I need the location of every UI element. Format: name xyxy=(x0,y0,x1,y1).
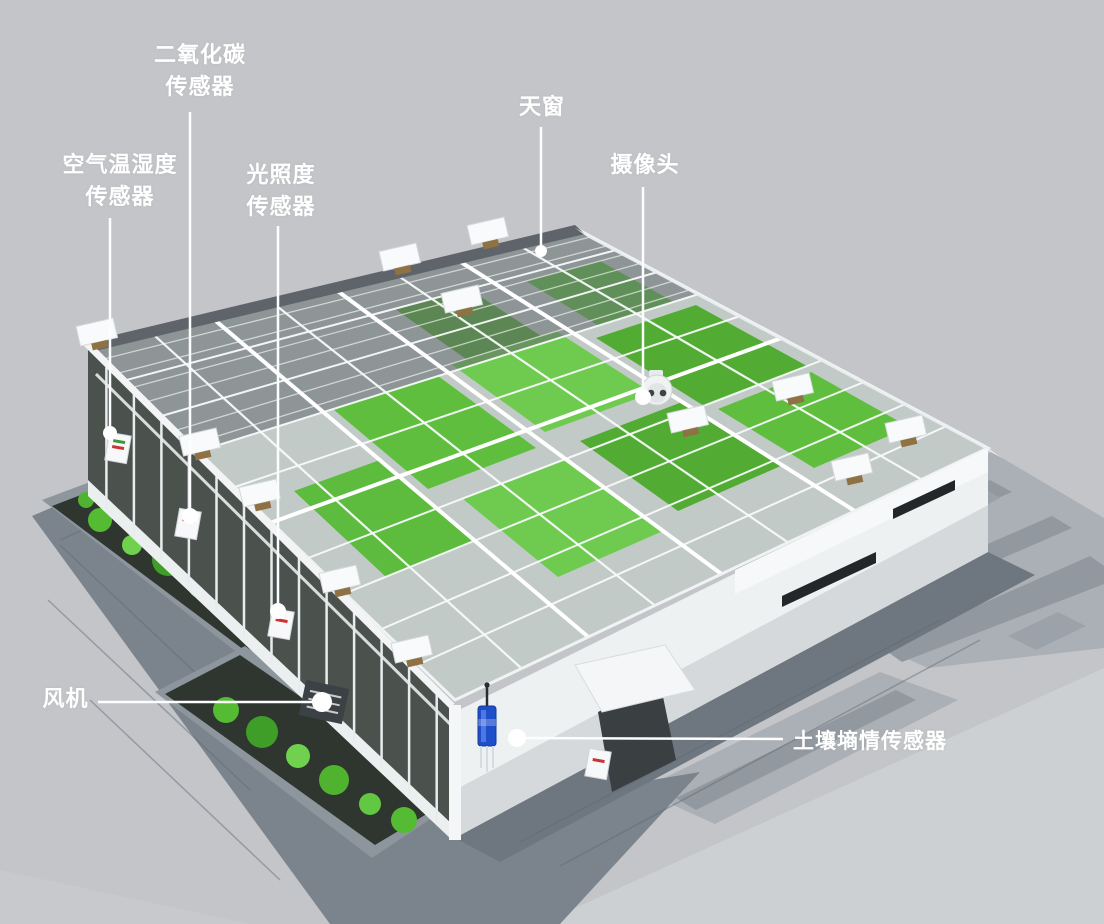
leader-dot-co2 xyxy=(182,508,198,524)
label-skylight: 天窗 xyxy=(492,92,592,124)
label-camera: 摄像头 xyxy=(595,150,695,182)
label-fan: 风机 xyxy=(28,684,103,716)
label-air-temp-humidity-sensor: 空气温湿度 传感器 xyxy=(45,150,195,214)
scene-canvas xyxy=(0,0,1104,924)
leader-dot-light xyxy=(270,603,286,619)
leader-dot-camera xyxy=(635,389,651,405)
label-co2-sensor: 二氧化碳 传感器 xyxy=(130,40,270,104)
leader-dot-fan xyxy=(312,692,332,712)
greenhouse-diagram: 二氧化碳 传感器 空气温湿度 传感器 光照度 传感器 天窗 摄像头 风机 土壤墒… xyxy=(0,0,1104,924)
label-soil-moisture-sensor: 土壤墒情传感器 xyxy=(793,726,947,756)
leader-line-soil xyxy=(517,738,783,739)
leader-dot-skylight xyxy=(535,245,547,257)
label-light-sensor: 光照度 传感器 xyxy=(231,160,331,224)
leader-dot-air xyxy=(103,426,117,440)
leader-dot-soil xyxy=(508,729,526,747)
